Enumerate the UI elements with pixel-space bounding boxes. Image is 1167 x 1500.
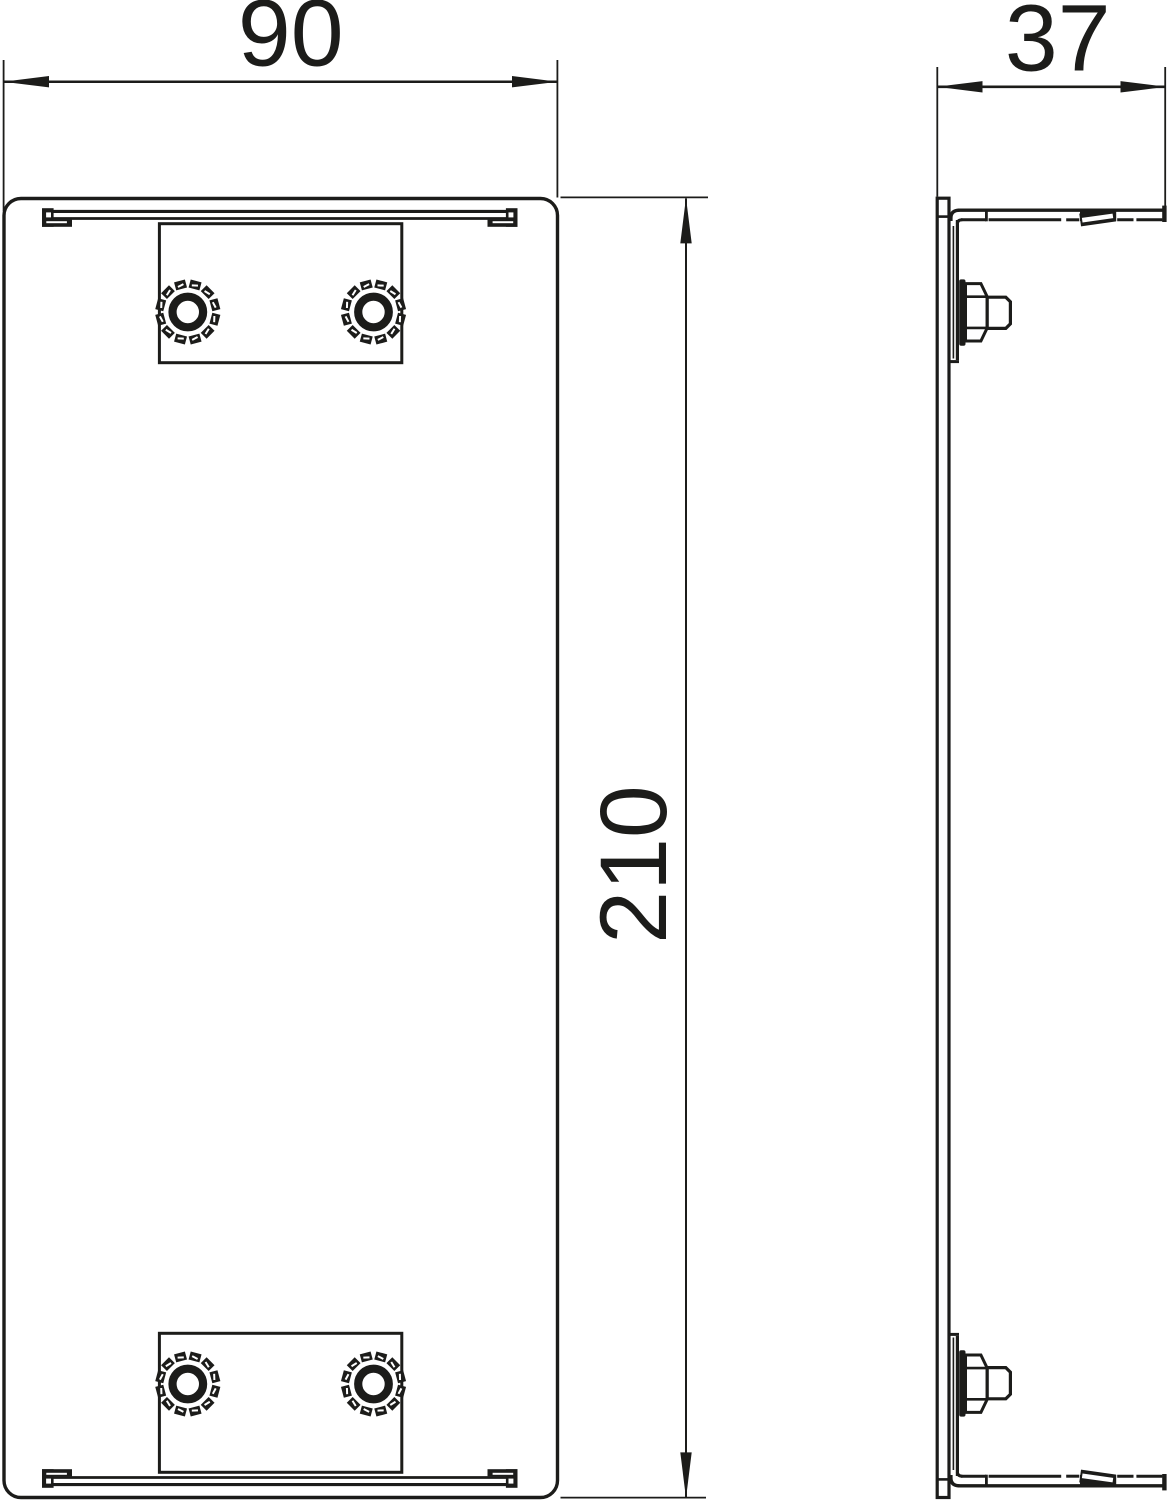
svg-text:90: 90 <box>238 0 344 87</box>
svg-text:210: 210 <box>581 785 687 944</box>
svg-text:37: 37 <box>1005 0 1111 92</box>
